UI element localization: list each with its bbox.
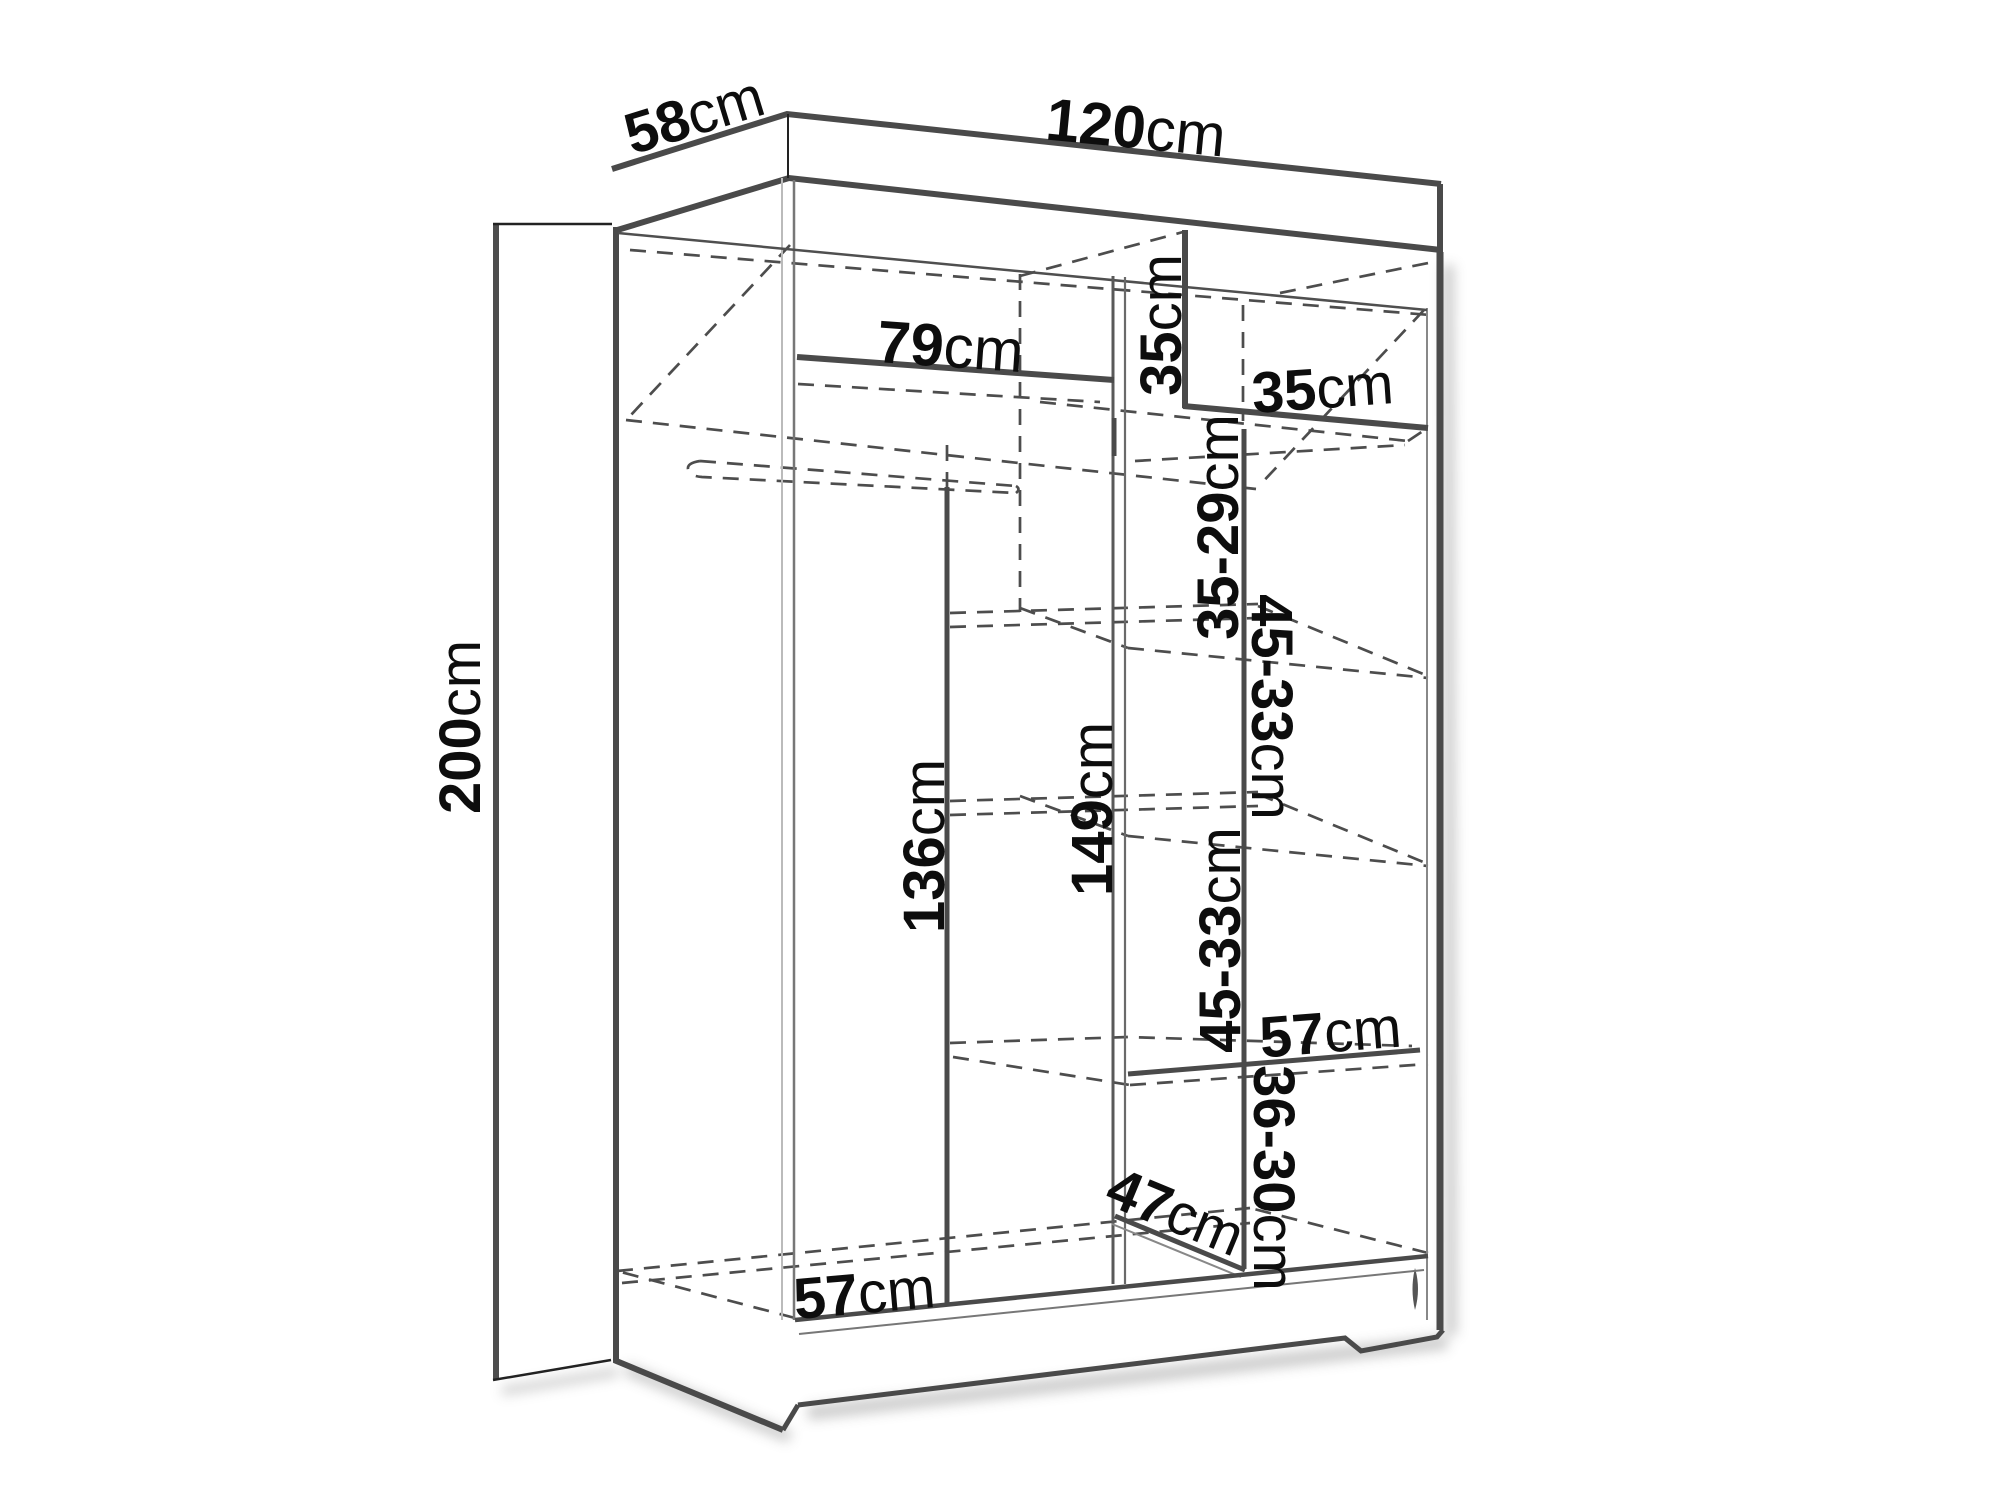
svg-text:45-33cm: 45-33cm [1239,594,1304,820]
svg-text:47cm: 47cm [1098,1155,1254,1269]
svg-text:136cm: 136cm [892,759,957,933]
svg-text:57cm: 57cm [791,1255,938,1332]
svg-text:200cm: 200cm [428,640,493,814]
svg-text:120cm: 120cm [1043,86,1229,170]
svg-text:35cm: 35cm [1129,254,1194,396]
svg-text:35cm: 35cm [1250,351,1396,426]
svg-text:57cm: 57cm [1257,995,1404,1071]
svg-text:79cm: 79cm [875,308,1026,385]
svg-text:58cm: 58cm [617,64,772,168]
svg-text:45-33cm: 45-33cm [1188,827,1253,1053]
svg-text:149cm: 149cm [1060,722,1125,896]
svg-text:36-30cm: 36-30cm [1241,1065,1306,1291]
